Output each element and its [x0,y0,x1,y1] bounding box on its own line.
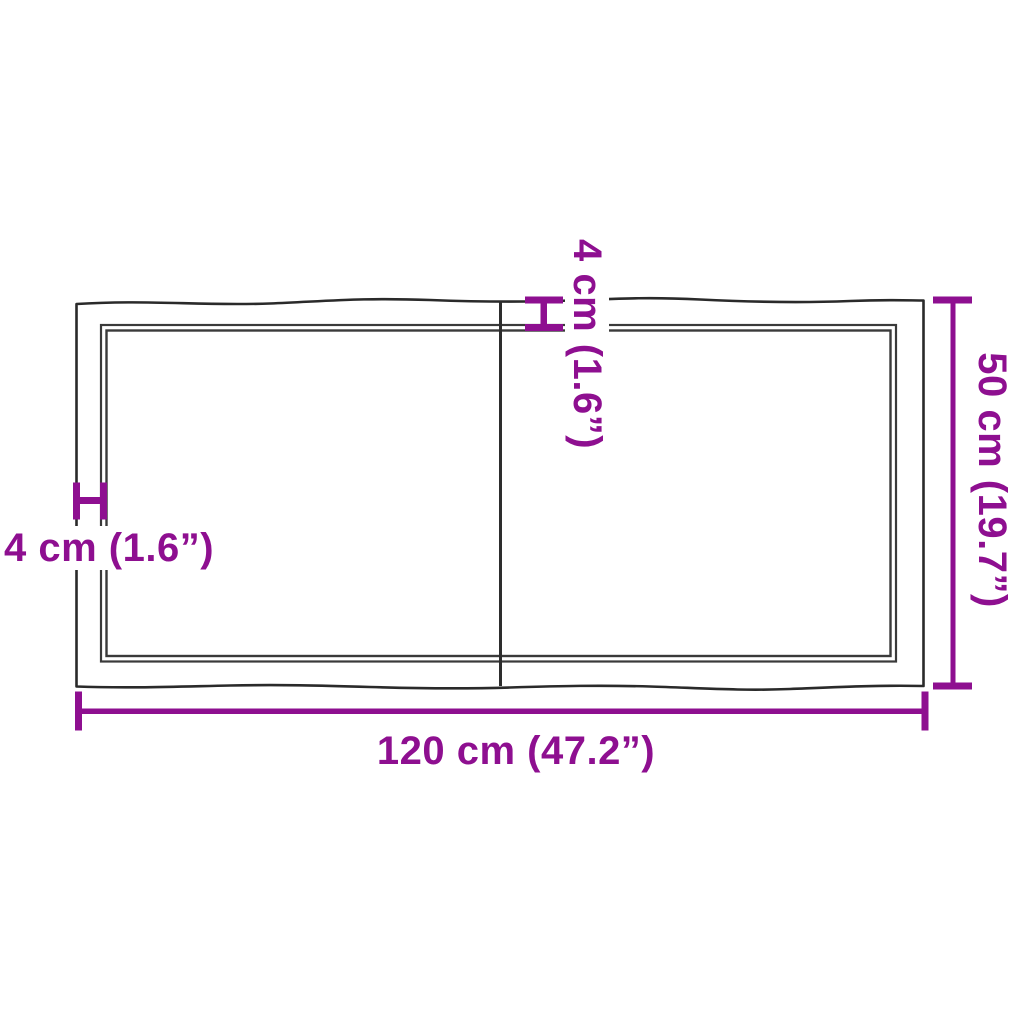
inner-edge-outline-outer [101,325,896,662]
height-dimension-label: 50 cm (19.7”) [970,350,1014,610]
edge-thickness-marker-top [525,297,563,332]
height-dimension-line [933,297,972,690]
dimension-diagram: 120 cm (47.2”) 50 cm (19.7”) 4 cm (1.6”)… [0,0,1024,1024]
diagram-linework [0,0,1024,1024]
inner-edge-outline-inner [107,331,891,657]
edge-thickness-label-left: 4 cm (1.6”) [4,526,194,570]
edge-thickness-marker-left [73,483,107,520]
width-dimension-label: 120 cm (47.2”) [366,729,666,773]
width-dimension-line [75,692,929,731]
edge-thickness-label-top: 4 cm (1.6”) [565,239,609,439]
